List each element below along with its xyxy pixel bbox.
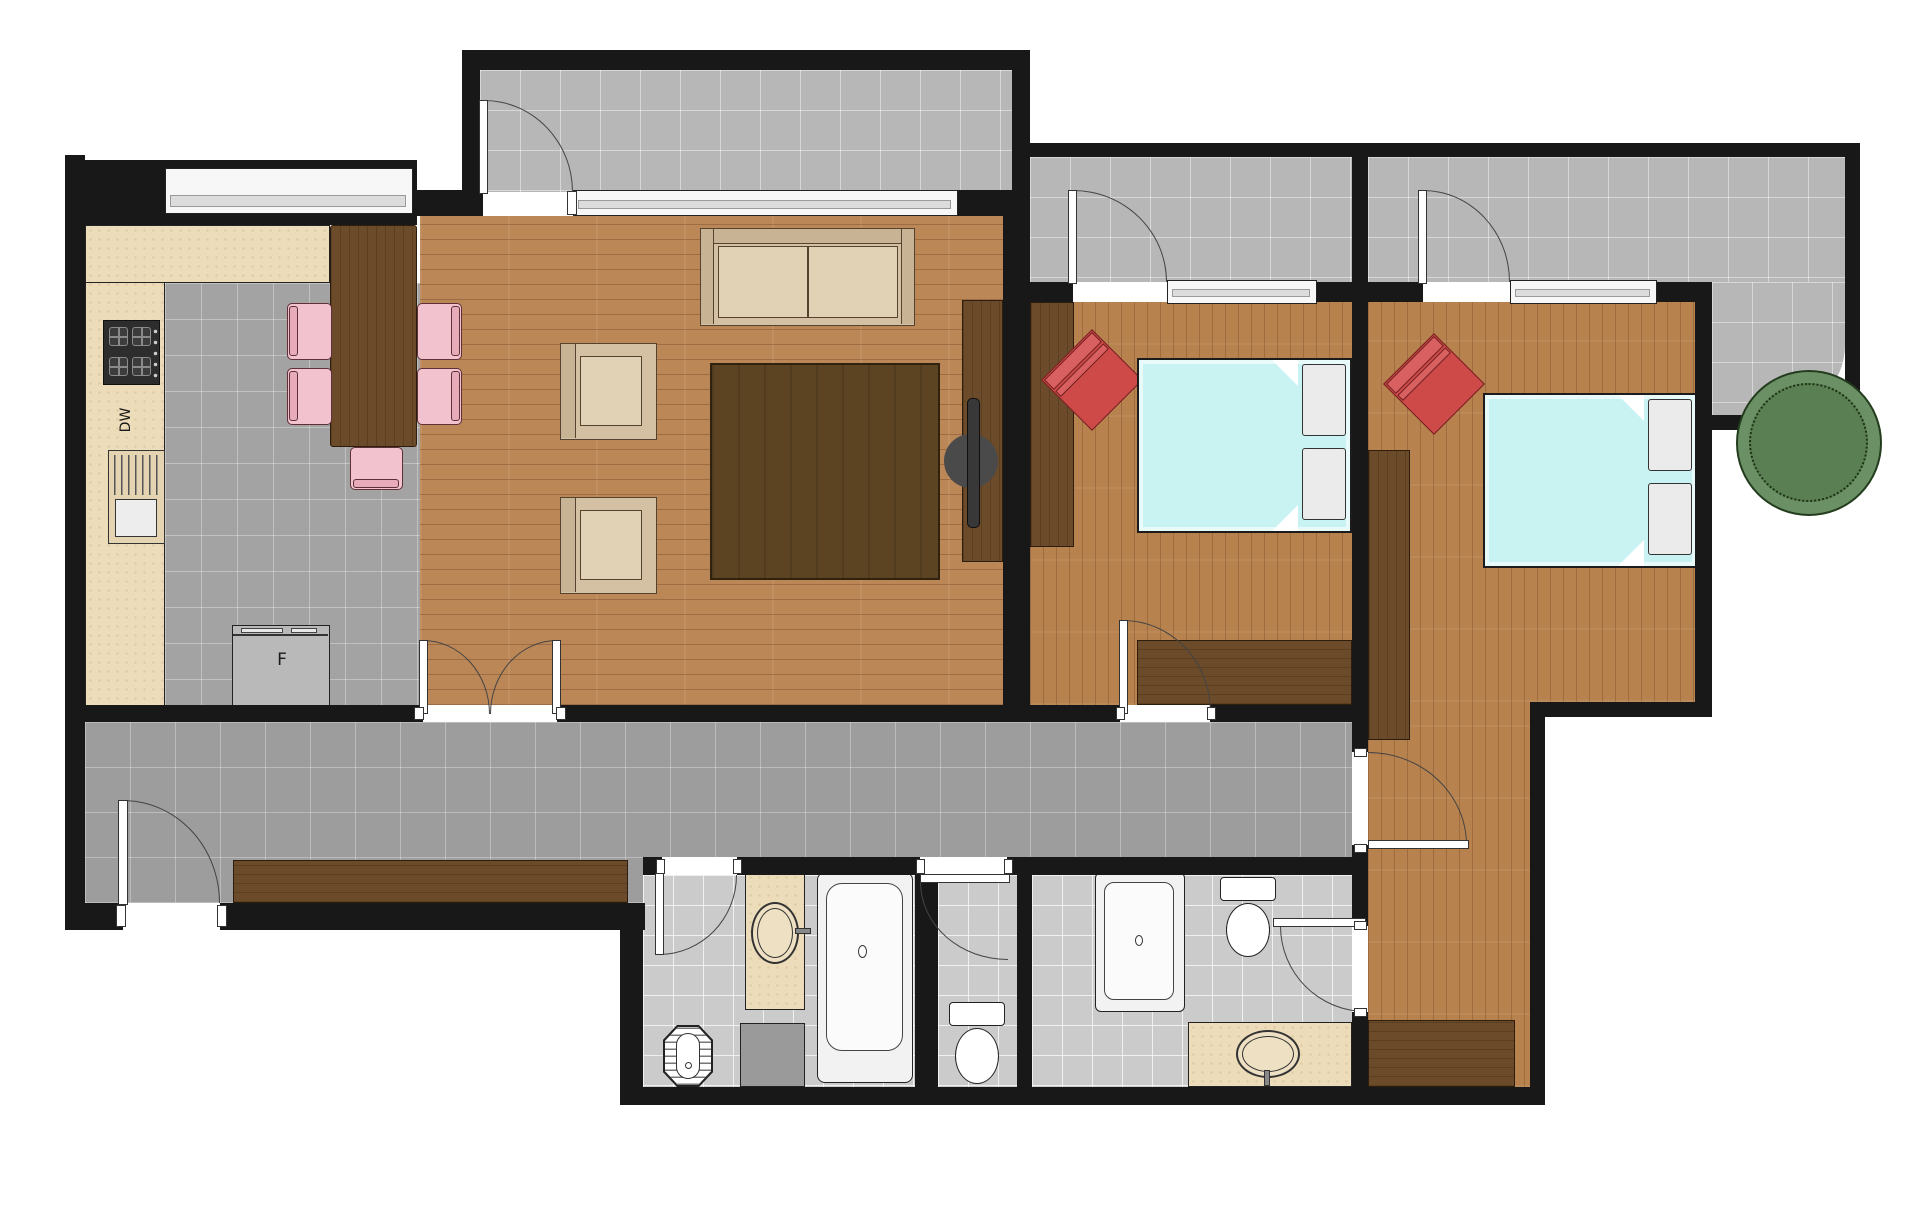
bedroom2-dresser xyxy=(1368,1020,1515,1087)
window-glass xyxy=(1515,289,1650,297)
door-jamb xyxy=(916,859,925,874)
chair-back xyxy=(289,306,298,356)
wall xyxy=(620,930,643,1087)
wall xyxy=(1530,702,1712,717)
dishwasher-label: DW xyxy=(106,398,146,442)
kitchen-counter-top xyxy=(85,225,330,283)
sofa-armrest xyxy=(701,229,714,324)
toilet-tank xyxy=(1220,877,1276,901)
wall xyxy=(1030,282,1073,302)
wall xyxy=(1017,875,1032,1087)
wall xyxy=(737,857,920,875)
balcony-divider-wall xyxy=(1352,143,1368,302)
pillow xyxy=(1302,448,1346,520)
fridge: F xyxy=(232,625,330,707)
fridge-label: F xyxy=(233,652,331,669)
chair-back xyxy=(451,371,460,421)
dining-chair xyxy=(417,303,462,360)
balcony-wall xyxy=(1030,143,1860,157)
entry-door xyxy=(118,800,128,905)
wall xyxy=(1352,1012,1368,1087)
pillow xyxy=(1648,483,1692,555)
wall xyxy=(1030,705,1120,722)
radiator-valve xyxy=(685,1062,692,1069)
sofa-cushion xyxy=(718,246,808,318)
ensuite-door xyxy=(1273,918,1366,927)
door-jamb xyxy=(1354,921,1367,930)
sink-drainboard xyxy=(114,455,158,495)
armchair xyxy=(560,497,657,594)
bedroom1-balcony-door xyxy=(1068,190,1077,284)
toilet-tank xyxy=(949,1002,1005,1026)
balcony-wall xyxy=(462,63,480,193)
faucet xyxy=(1264,1070,1270,1086)
towel-radiator-body xyxy=(676,1033,700,1079)
floor-plan: DW F xyxy=(0,0,1920,1228)
door-jamb xyxy=(414,707,424,720)
fridge-handle xyxy=(241,628,283,633)
toilet-bowl xyxy=(955,1028,999,1084)
door-jamb xyxy=(1354,748,1367,757)
living-balcony-door xyxy=(479,100,488,194)
pillow xyxy=(1302,364,1346,436)
wall xyxy=(1003,192,1030,722)
stove-knobs xyxy=(153,326,158,378)
sink-basin xyxy=(1242,1036,1294,1072)
bathroom1-door xyxy=(655,873,664,955)
door-jamb xyxy=(217,905,227,927)
french-door-left xyxy=(419,640,428,714)
wall xyxy=(1368,282,1423,302)
balcony-wall xyxy=(1012,63,1030,193)
wc-door xyxy=(920,874,1010,883)
chair-back xyxy=(353,479,399,488)
dining-chair xyxy=(287,368,332,425)
sofa xyxy=(700,228,915,326)
bedroom1-wardrobe xyxy=(1030,302,1074,547)
toilet-bowl xyxy=(1226,903,1270,957)
chair-back xyxy=(289,371,298,421)
dining-chair xyxy=(417,368,462,425)
window-glass xyxy=(170,195,406,207)
bedroom2-balcony-door xyxy=(1418,190,1427,284)
wall xyxy=(1530,702,1545,1105)
armchair xyxy=(560,343,657,440)
sink-basin xyxy=(115,499,157,537)
window-glass xyxy=(578,200,951,209)
stove-burner xyxy=(132,327,151,346)
chair-back xyxy=(451,306,460,356)
pillow xyxy=(1648,399,1692,471)
door-jamb xyxy=(656,859,665,874)
armchair-seat xyxy=(580,510,642,580)
armchair-back xyxy=(561,344,576,438)
wall xyxy=(220,903,645,930)
hallway-console xyxy=(233,860,628,903)
fridge-door-line xyxy=(233,634,328,636)
bathroom1-sink xyxy=(751,902,799,964)
door-jamb xyxy=(1354,844,1367,853)
sink-basin xyxy=(757,908,793,958)
sofa-back xyxy=(701,229,913,244)
bedroom2-door xyxy=(1368,840,1469,849)
bathtub-drain xyxy=(858,945,867,958)
door-jamb xyxy=(116,905,126,927)
shower xyxy=(1095,872,1185,1012)
dining-chair xyxy=(350,447,403,490)
wall xyxy=(65,705,423,722)
door-jamb xyxy=(556,707,566,720)
tree-planter xyxy=(1736,370,1882,516)
dining-table xyxy=(330,225,417,447)
tv xyxy=(967,398,980,528)
wall xyxy=(1317,282,1368,302)
wall xyxy=(417,190,483,216)
wall xyxy=(557,705,1030,722)
sofa-armrest xyxy=(901,229,914,324)
window-glass xyxy=(1172,289,1310,297)
bedroom1-window xyxy=(1167,280,1317,304)
armchair-seat xyxy=(580,356,642,426)
balcony-wall xyxy=(462,50,1030,70)
living-window xyxy=(573,190,958,216)
wall xyxy=(620,1087,1545,1105)
hallway-floor xyxy=(85,722,1352,857)
wall xyxy=(1210,705,1352,722)
stove-burner xyxy=(109,327,128,346)
wall xyxy=(1352,302,1368,722)
door-jamb xyxy=(733,859,742,874)
fridge-handle xyxy=(291,628,317,633)
bedroom2-window xyxy=(1510,280,1657,304)
bedroom1-door xyxy=(1119,620,1128,714)
bedroom2-wardrobe xyxy=(1368,450,1410,740)
door-jamb xyxy=(1004,859,1013,874)
door-jamb xyxy=(1354,1008,1367,1017)
washing-machine xyxy=(740,1023,805,1087)
door-jamb xyxy=(567,191,577,215)
stove xyxy=(103,320,160,385)
wall xyxy=(65,903,123,930)
tree-canopy xyxy=(1749,383,1868,502)
stove-burner xyxy=(132,357,151,376)
kitchen-sink-unit xyxy=(108,450,165,544)
wall xyxy=(65,155,85,930)
bathtub-inner xyxy=(826,883,903,1051)
sofa-cushion xyxy=(808,246,898,318)
door-jamb xyxy=(1116,707,1125,720)
kitchen-window xyxy=(165,168,413,214)
area-rug xyxy=(710,363,940,580)
armchair-back xyxy=(561,498,576,592)
bathtub xyxy=(817,872,913,1083)
shower-drain xyxy=(1135,935,1143,946)
dining-chair xyxy=(287,303,332,360)
faucet xyxy=(795,928,811,934)
wall xyxy=(1007,857,1352,875)
stove-burner xyxy=(109,357,128,376)
wall xyxy=(1695,282,1712,717)
french-door-right xyxy=(552,640,561,714)
door-jamb xyxy=(1207,707,1216,720)
